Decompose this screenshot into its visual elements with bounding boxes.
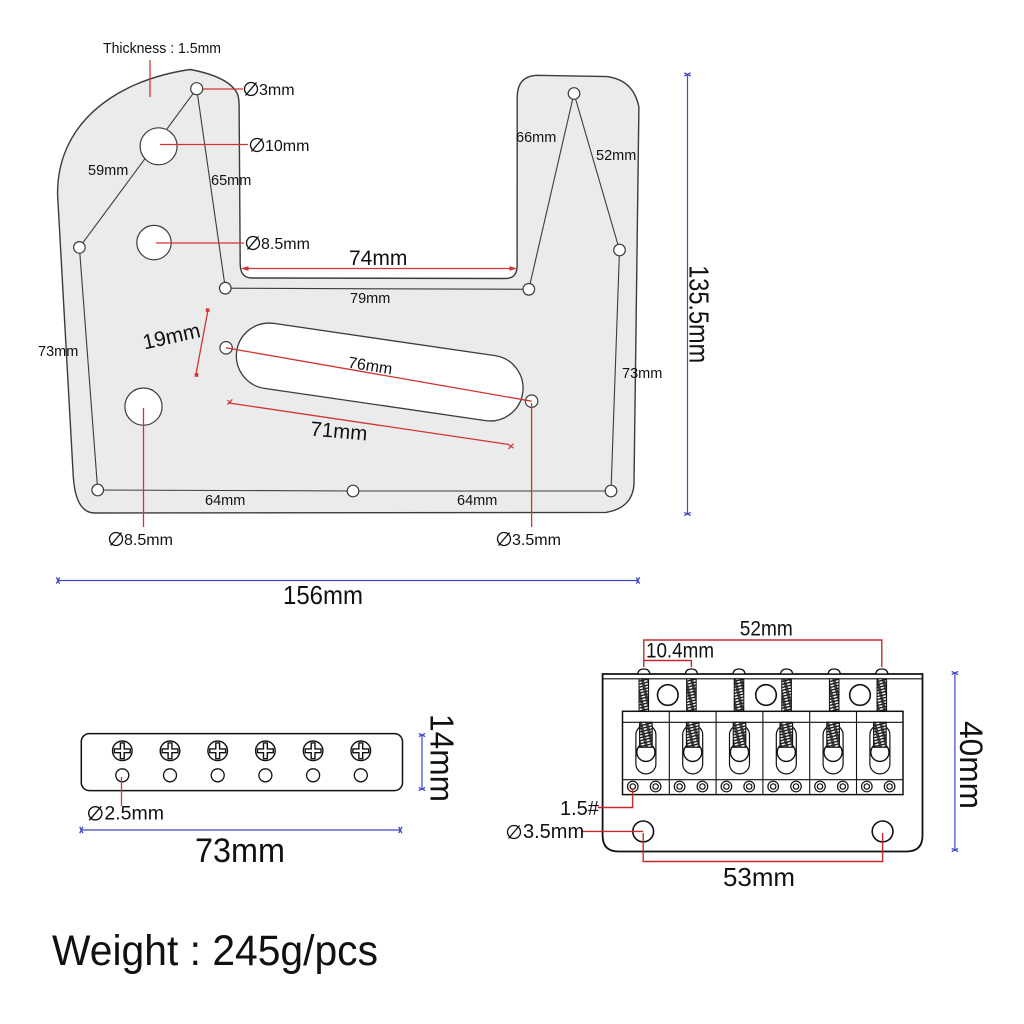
svg-text:10mm: 10mm [265, 138, 309, 155]
svg-text:73mm: 73mm [622, 366, 662, 382]
svg-text:8.5mm: 8.5mm [124, 532, 173, 549]
svg-text:53mm: 53mm [723, 862, 795, 892]
svg-text:135.5mm: 135.5mm [684, 265, 715, 363]
svg-text:Weight : 245g/pcs: Weight : 245g/pcs [52, 927, 378, 975]
svg-text:40mm: 40mm [953, 721, 989, 809]
svg-text:52mm: 52mm [740, 617, 793, 641]
svg-text:52mm: 52mm [596, 148, 636, 164]
svg-text:3mm: 3mm [259, 82, 295, 99]
svg-text:73mm: 73mm [195, 832, 285, 870]
svg-text:14mm: 14mm [424, 714, 461, 802]
svg-text:Thickness : 1.5mm: Thickness : 1.5mm [103, 40, 221, 57]
svg-text:66mm: 66mm [516, 130, 556, 146]
svg-text:156mm: 156mm [283, 580, 363, 610]
svg-text:73mm: 73mm [38, 344, 78, 360]
svg-text:64mm: 64mm [457, 493, 497, 509]
svg-text:59mm: 59mm [88, 163, 128, 179]
svg-text:8.5mm: 8.5mm [261, 236, 310, 253]
svg-text:3.5mm: 3.5mm [512, 532, 561, 549]
svg-text:3.5mm: 3.5mm [523, 821, 584, 843]
svg-text:1.5#: 1.5# [560, 798, 600, 820]
svg-text:2.5mm: 2.5mm [104, 803, 164, 825]
svg-text:74mm: 74mm [349, 247, 407, 270]
svg-text:79mm: 79mm [350, 291, 390, 307]
svg-text:65mm: 65mm [211, 173, 251, 189]
svg-text:10.4mm: 10.4mm [646, 639, 714, 663]
svg-text:64mm: 64mm [205, 493, 245, 509]
